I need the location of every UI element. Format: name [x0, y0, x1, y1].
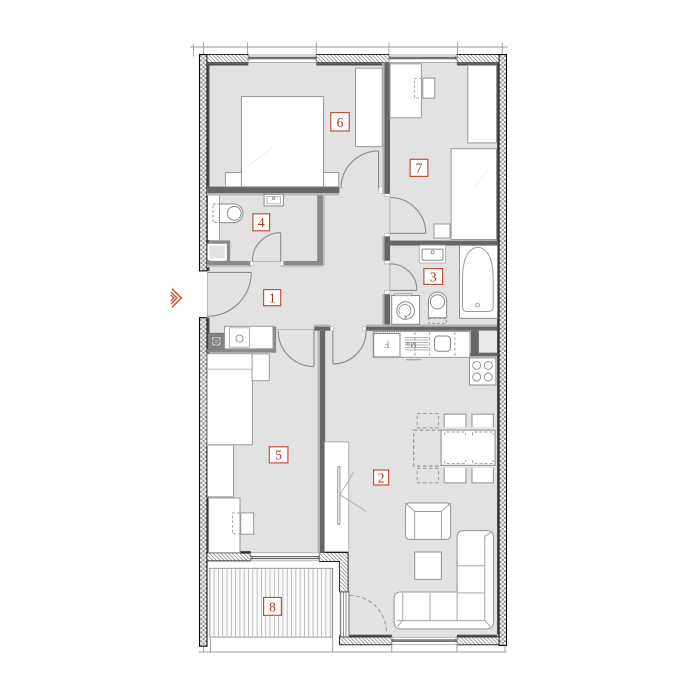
svg-text:8: 8	[269, 600, 276, 615]
svg-text:6: 6	[337, 115, 344, 130]
svg-text:1: 1	[269, 291, 276, 306]
svg-text:4: 4	[258, 215, 265, 230]
svg-text:F: F	[384, 340, 389, 350]
svg-text:2: 2	[378, 470, 385, 485]
svg-text:5: 5	[275, 448, 282, 463]
svg-text:7: 7	[416, 161, 423, 176]
svg-text:3: 3	[430, 269, 437, 284]
